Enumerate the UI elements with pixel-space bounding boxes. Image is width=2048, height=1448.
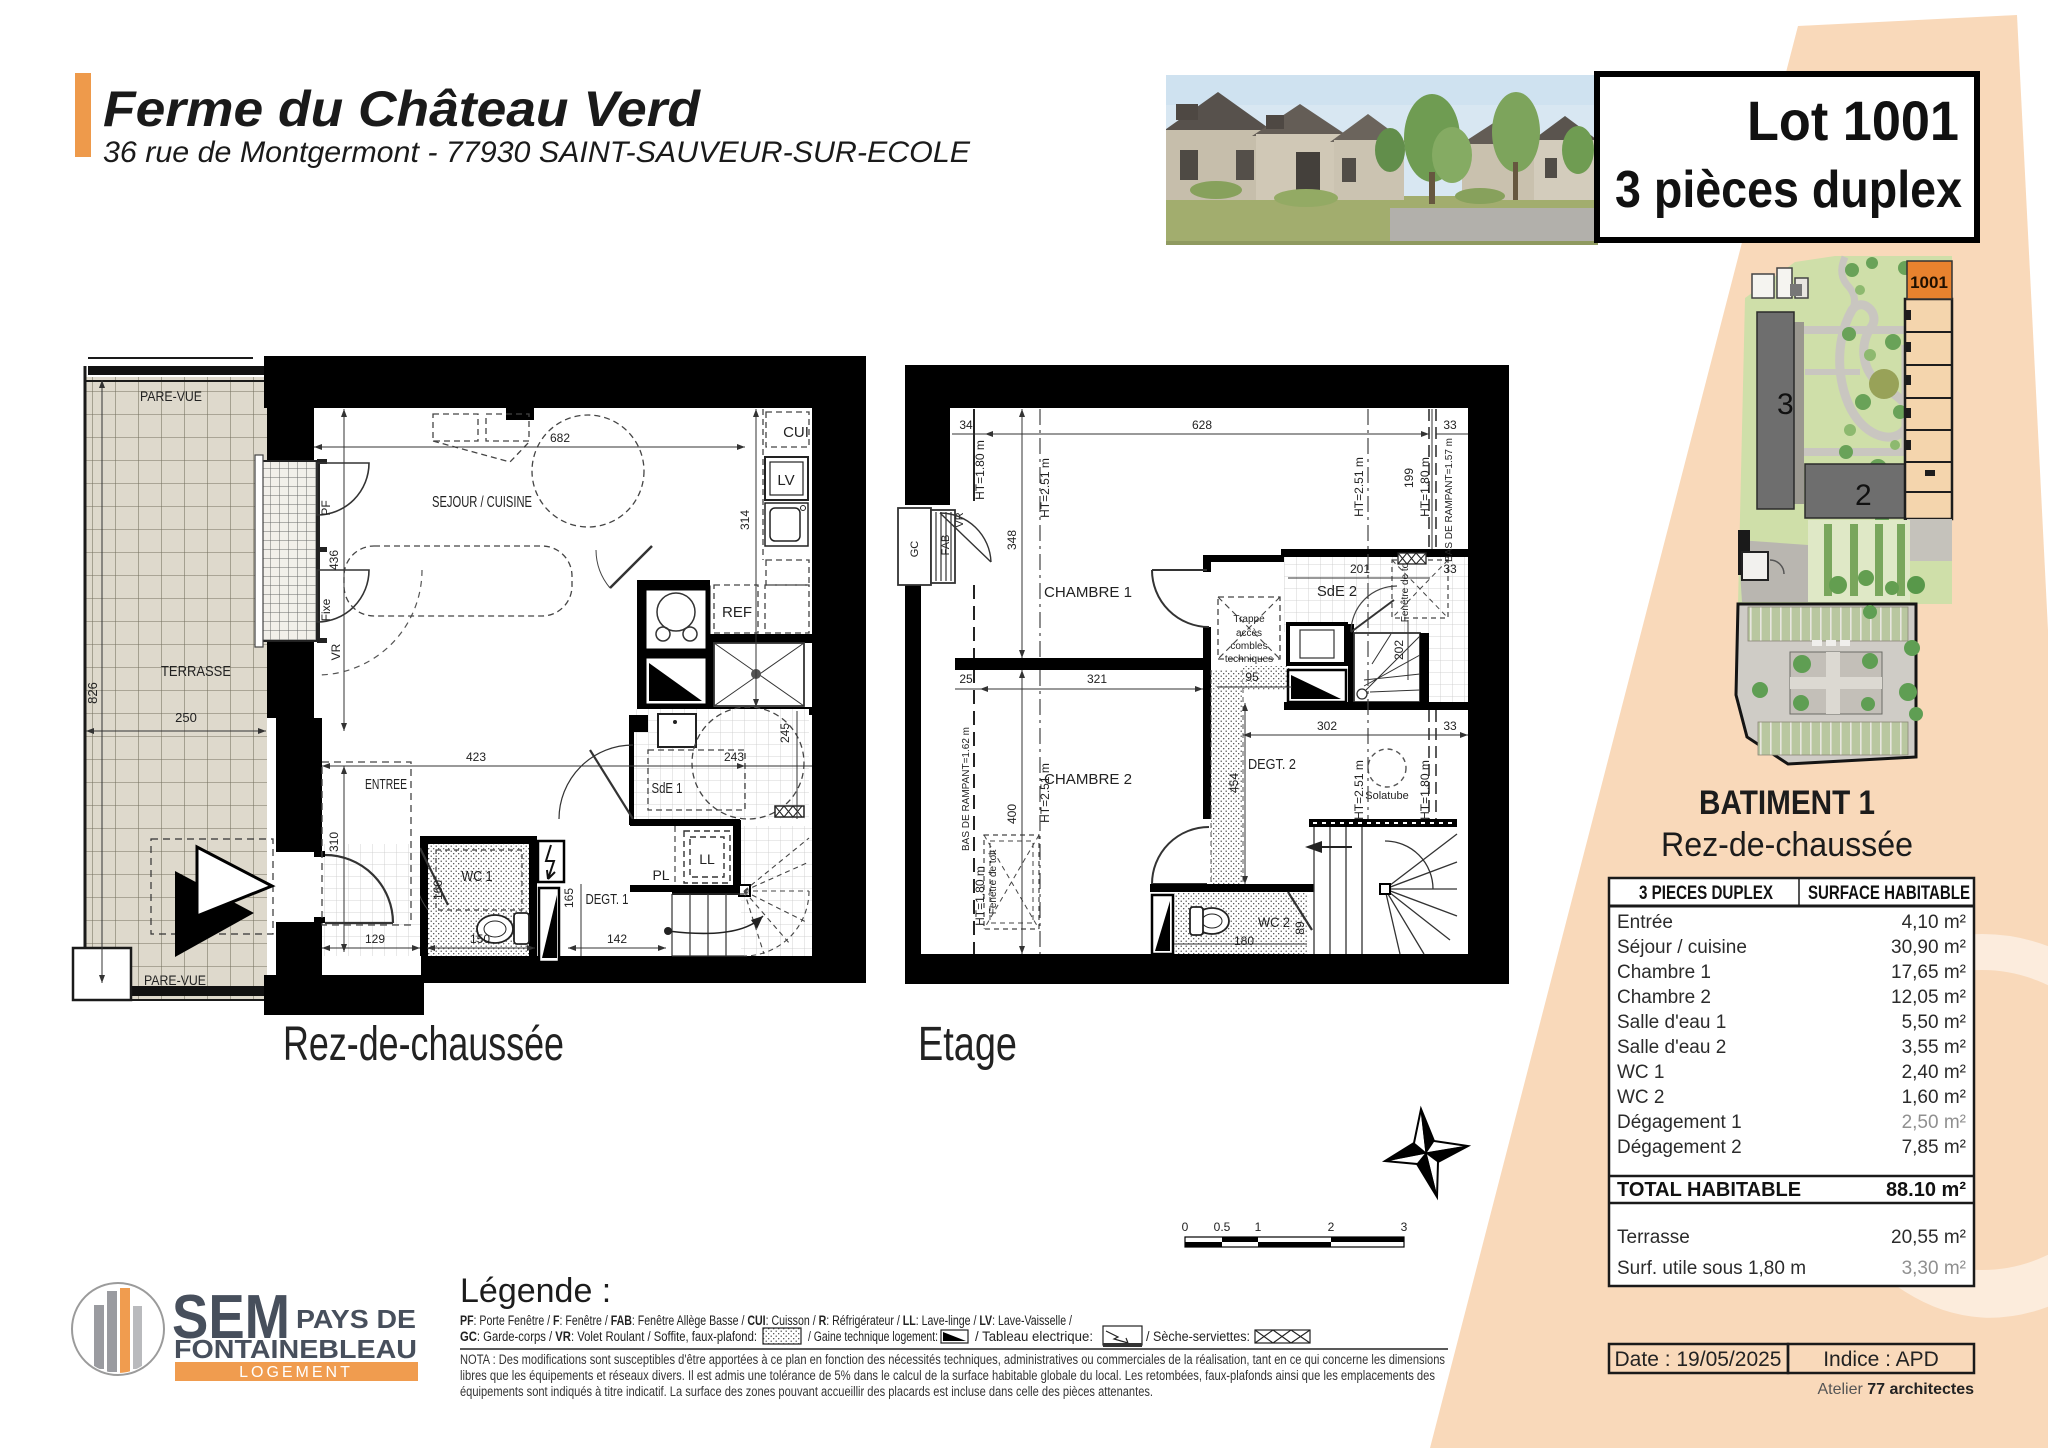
svg-text:682: 682 bbox=[550, 431, 570, 445]
svg-text:SURFACE HABITABLE: SURFACE HABITABLE bbox=[1808, 883, 1970, 904]
svg-text:CUI: CUI bbox=[783, 424, 809, 441]
svg-text:4,10 m²: 4,10 m² bbox=[1902, 912, 1966, 933]
svg-text:HT=2.51 m: HT=2.51 m bbox=[1038, 458, 1052, 518]
svg-text:Rez-de-chaussée: Rez-de-chaussée bbox=[283, 1018, 564, 1071]
svg-text:DEGT. 2: DEGT. 2 bbox=[1248, 756, 1296, 773]
svg-text:Chambre 2: Chambre 2 bbox=[1617, 987, 1711, 1008]
svg-text:129: 129 bbox=[365, 932, 385, 946]
svg-text:Dégagement 2: Dégagement 2 bbox=[1617, 1137, 1742, 1158]
svg-text:Indice : APD: Indice : APD bbox=[1823, 1348, 1939, 1371]
svg-text:Fenêtre de toit: Fenêtre de toit bbox=[1400, 558, 1411, 623]
svg-text:combles: combles bbox=[1230, 641, 1267, 652]
svg-text:5,50 m²: 5,50 m² bbox=[1902, 1012, 1966, 1033]
svg-text:12,05 m²: 12,05 m² bbox=[1891, 987, 1966, 1008]
svg-text:Chambre 1: Chambre 1 bbox=[1617, 962, 1711, 983]
svg-text:NOTA : Des modifications sont: NOTA : Des modifications sont susceptibl… bbox=[460, 1352, 1445, 1367]
svg-text:1001: 1001 bbox=[1910, 273, 1948, 292]
svg-text:160: 160 bbox=[431, 880, 445, 900]
svg-text:321: 321 bbox=[1087, 672, 1107, 686]
svg-text:Salle d'eau 1: Salle d'eau 1 bbox=[1617, 1012, 1726, 1033]
svg-text:BAS DE RAMPANT=1.57 m: BAS DE RAMPANT=1.57 m bbox=[1444, 438, 1455, 562]
svg-text:WC 1: WC 1 bbox=[462, 868, 493, 885]
svg-text:PF: Porte Fenêtre / F: Fenêtre: PF: Porte Fenêtre / F: Fenêtre / FAB: Fe… bbox=[460, 1313, 1072, 1328]
svg-text:2,50 m²: 2,50 m² bbox=[1902, 1112, 1966, 1133]
svg-text:202: 202 bbox=[1392, 640, 1406, 660]
svg-text:2,40 m²: 2,40 m² bbox=[1902, 1062, 1966, 1083]
svg-text:GC: Garde-corps / VR: Volet Ro: GC: Garde-corps / VR: Volet Roulant / So… bbox=[460, 1329, 757, 1344]
svg-text:348: 348 bbox=[1005, 530, 1019, 550]
svg-text:Surf. utile sous 1,80 m: Surf. utile sous 1,80 m bbox=[1617, 1258, 1806, 1279]
svg-text:Séjour / cuisine: Séjour / cuisine bbox=[1617, 937, 1747, 958]
svg-text:équipements sont indiqués à ti: équipements sont indiqués à titre indica… bbox=[460, 1384, 1153, 1399]
svg-text:Etage: Etage bbox=[918, 1018, 1017, 1071]
svg-text:PAYS DE: PAYS DE bbox=[296, 1304, 416, 1334]
svg-text:Solatube: Solatube bbox=[1365, 790, 1408, 802]
svg-text:TOTAL HABITABLE: TOTAL HABITABLE bbox=[1617, 1179, 1801, 1201]
svg-text:Salle d'eau 2: Salle d'eau 2 bbox=[1617, 1037, 1726, 1058]
svg-text:Lot 1001: Lot 1001 bbox=[1747, 89, 1959, 152]
svg-text:/ Sèche-serviettes:: / Sèche-serviettes: bbox=[1146, 1329, 1250, 1344]
svg-text:Dégagement 1: Dégagement 1 bbox=[1617, 1112, 1742, 1133]
svg-text:BAS DE RAMPANT=1.62 m: BAS DE RAMPANT=1.62 m bbox=[961, 727, 972, 851]
svg-text:LV: LV bbox=[777, 472, 794, 489]
svg-text:3 pièces duplex: 3 pièces duplex bbox=[1615, 161, 1962, 219]
svg-text:SdE 2: SdE 2 bbox=[1317, 583, 1357, 600]
svg-text:7,85 m²: 7,85 m² bbox=[1902, 1137, 1966, 1158]
svg-text:Entrée: Entrée bbox=[1617, 912, 1673, 933]
svg-text:314: 314 bbox=[738, 510, 752, 530]
svg-text:33: 33 bbox=[1443, 562, 1457, 576]
svg-text:HT=1.80 m: HT=1.80 m bbox=[1418, 760, 1432, 820]
svg-text:0.5: 0.5 bbox=[1214, 1220, 1231, 1234]
svg-text:Rez-de-chaussée: Rez-de-chaussée bbox=[1661, 826, 1913, 864]
svg-text:WC 1: WC 1 bbox=[1617, 1062, 1665, 1083]
svg-text:Atelier 77 architectes: Atelier 77 architectes bbox=[1817, 1381, 1974, 1398]
svg-text:436: 436 bbox=[327, 550, 341, 570]
svg-text:HT=2.51 m: HT=2.51 m bbox=[1038, 763, 1052, 823]
svg-text:30,90 m²: 30,90 m² bbox=[1891, 937, 1966, 958]
svg-text:3,30 m²: 3,30 m² bbox=[1902, 1258, 1966, 1279]
svg-text:628: 628 bbox=[1192, 418, 1212, 432]
svg-text:WC 2: WC 2 bbox=[1258, 914, 1290, 930]
svg-text:PL: PL bbox=[652, 867, 669, 883]
svg-text:243: 243 bbox=[724, 750, 744, 764]
svg-text:36 rue de Montgermont - 77930: 36 rue de Montgermont - 77930 SAINT-SAUV… bbox=[103, 136, 971, 169]
svg-text:/ Tableau electrique:: / Tableau electrique: bbox=[975, 1329, 1093, 1344]
svg-text:HT=1.80 m: HT=1.80 m bbox=[973, 440, 987, 500]
svg-text:1,60 m²: 1,60 m² bbox=[1902, 1087, 1966, 1108]
svg-text:Terrasse: Terrasse bbox=[1617, 1227, 1690, 1248]
svg-text:VR: VR bbox=[954, 512, 966, 527]
svg-text:libres que les équipements et: libres que les équipements et réseaux di… bbox=[460, 1368, 1435, 1383]
svg-text:302: 302 bbox=[1317, 719, 1337, 733]
svg-text:423: 423 bbox=[466, 750, 486, 764]
svg-text:DEGT. 1: DEGT. 1 bbox=[586, 891, 629, 908]
svg-text:HT=1.80 m: HT=1.80 m bbox=[1418, 457, 1432, 517]
svg-text:17,65 m²: 17,65 m² bbox=[1891, 962, 1966, 983]
svg-text:GC: GC bbox=[909, 541, 921, 558]
svg-text:BATIMENT 1: BATIMENT 1 bbox=[1699, 784, 1875, 822]
svg-text:CHAMBRE 1: CHAMBRE 1 bbox=[1044, 584, 1132, 601]
svg-text:/ Gaine technique logement:: / Gaine technique logement: bbox=[808, 1329, 938, 1344]
svg-text:142: 142 bbox=[607, 932, 627, 946]
svg-text:PARE-VUE: PARE-VUE bbox=[140, 388, 202, 404]
svg-text:454: 454 bbox=[1227, 773, 1241, 793]
svg-text:SdE 1: SdE 1 bbox=[652, 780, 683, 797]
svg-text:FAB: FAB bbox=[940, 535, 952, 556]
svg-text:1: 1 bbox=[1255, 1220, 1262, 1234]
svg-text:SEJOUR / CUISINE: SEJOUR / CUISINE bbox=[432, 494, 532, 511]
svg-text:25: 25 bbox=[959, 672, 973, 686]
svg-text:310: 310 bbox=[327, 832, 341, 852]
svg-text:20,55 m²: 20,55 m² bbox=[1891, 1227, 1966, 1248]
svg-text:826: 826 bbox=[85, 682, 100, 704]
svg-text:89: 89 bbox=[1293, 921, 1307, 935]
svg-text:400: 400 bbox=[1005, 804, 1019, 824]
svg-text:95: 95 bbox=[1245, 670, 1259, 684]
svg-text:34: 34 bbox=[959, 418, 973, 432]
svg-text:3 PIECES DUPLEX: 3 PIECES DUPLEX bbox=[1639, 883, 1773, 904]
svg-text:Trappe: Trappe bbox=[1233, 614, 1265, 625]
svg-text:245: 245 bbox=[778, 723, 792, 743]
svg-text:33: 33 bbox=[1443, 719, 1457, 733]
svg-text:REF: REF bbox=[722, 604, 752, 621]
svg-text:250: 250 bbox=[175, 710, 197, 725]
svg-text:3: 3 bbox=[1401, 1220, 1408, 1234]
svg-text:PARE-VUE: PARE-VUE bbox=[144, 972, 206, 988]
svg-text:180: 180 bbox=[1234, 934, 1254, 948]
svg-text:150: 150 bbox=[470, 932, 490, 946]
svg-text:VR: VR bbox=[329, 643, 343, 660]
svg-text:Date : 19/05/2025: Date : 19/05/2025 bbox=[1615, 1348, 1782, 1371]
svg-text:HT=2.51 m: HT=2.51 m bbox=[1352, 760, 1366, 820]
svg-text:2: 2 bbox=[1328, 1220, 1335, 1234]
svg-text:199: 199 bbox=[1402, 468, 1416, 488]
svg-text:201: 201 bbox=[1350, 562, 1370, 576]
svg-text:33: 33 bbox=[1443, 418, 1457, 432]
svg-text:0: 0 bbox=[1182, 1220, 1189, 1234]
svg-text:Fenêtre de toit: Fenêtre de toit bbox=[988, 850, 999, 915]
svg-text:165: 165 bbox=[562, 888, 576, 908]
svg-text:ENTREE: ENTREE bbox=[365, 776, 407, 793]
svg-text:2: 2 bbox=[1855, 479, 1872, 512]
svg-text:Fixe: Fixe bbox=[319, 598, 333, 621]
svg-text:TERRASSE: TERRASSE bbox=[161, 663, 231, 680]
svg-text:HT=1.80 m: HT=1.80 m bbox=[973, 866, 987, 926]
svg-text:LL: LL bbox=[699, 851, 715, 867]
svg-text:LOGEMENT: LOGEMENT bbox=[239, 1364, 353, 1381]
svg-text:FONTAINEBLEAU: FONTAINEBLEAU bbox=[174, 1334, 417, 1364]
svg-text:Ferme du Château Verd: Ferme du Château Verd bbox=[103, 81, 702, 137]
svg-text:3,55 m²: 3,55 m² bbox=[1902, 1037, 1966, 1058]
svg-text:CHAMBRE 2: CHAMBRE 2 bbox=[1044, 771, 1132, 788]
svg-text:88.10 m²: 88.10 m² bbox=[1886, 1179, 1966, 1201]
svg-text:Légende :: Légende : bbox=[460, 1272, 611, 1310]
svg-text:WC 2: WC 2 bbox=[1617, 1087, 1665, 1108]
svg-text:PF: PF bbox=[319, 500, 333, 515]
svg-text:accès: accès bbox=[1236, 628, 1262, 639]
svg-text:techniques: techniques bbox=[1225, 654, 1273, 665]
svg-text:3: 3 bbox=[1777, 388, 1794, 421]
svg-text:HT=2.51 m: HT=2.51 m bbox=[1352, 457, 1366, 517]
